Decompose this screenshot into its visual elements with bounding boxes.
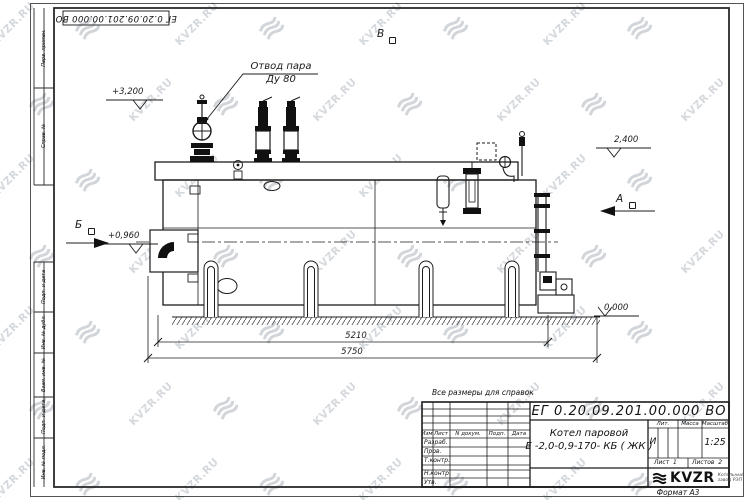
product-name-line2: Е -2,0-0,9-170- КБ ( ЖК ) — [525, 441, 652, 452]
reference-note: Все размеры для справок — [432, 388, 534, 397]
mass-header: Масса — [681, 421, 699, 427]
top-stamp-number: ЕГ 0.20.09.201.00.000 ВО — [55, 13, 176, 23]
view-v-ref-icon — [389, 37, 396, 44]
col-ndoc: N докум. — [455, 431, 481, 437]
steam-outlet-label-line1: Отвод пара — [251, 61, 312, 72]
kvzr-logo: KVZR Котельный завод РЭП — [652, 470, 744, 486]
steam-outlet-label-line2: Ду 80 — [266, 74, 296, 85]
view-a-ref-icon — [629, 202, 636, 209]
dimension-5210: 5210 — [345, 331, 367, 341]
product-name-line1: Котел паровой — [550, 428, 628, 439]
kvzr-logo-icon — [652, 472, 667, 485]
text-layer: ЕГ 0.20.09.201.00.000 ВО Перв. примен. С… — [0, 0, 750, 500]
format-note: Формат А3 — [657, 488, 700, 497]
role-tkontr: Т.контр. — [424, 457, 450, 464]
col-list: Лист — [434, 431, 448, 437]
strip-podp-data-2: Подп. и дата — [41, 400, 47, 434]
scale-value: 1:25 — [704, 437, 725, 448]
sheet-label: Лист — [654, 459, 669, 466]
sheet-value: 1 — [673, 459, 677, 466]
view-label-v: В — [377, 28, 384, 40]
strip-inv-podl: Инв. № подл. — [41, 445, 47, 480]
sheets-cell: Листов 2 — [692, 459, 722, 466]
strip-vzam-inv: Взам. инв. № — [41, 358, 47, 392]
strip-podp-data-1: Подп. и дата — [41, 270, 47, 304]
elevation-0000: 0,000 — [604, 303, 628, 313]
strip-sprav-no: Справ. № — [41, 124, 47, 148]
elevation-2400: 2,400 — [614, 135, 638, 145]
dimension-5750: 5750 — [341, 347, 363, 357]
view-label-b: Б — [75, 219, 82, 231]
col-podp: Подп. — [489, 431, 506, 437]
drawing-sheet: KVZR.RUKVZR.RUKVZR.RUKVZR.RUKVZR.RUKVZR.… — [0, 0, 750, 500]
sheets-value: 2 — [718, 459, 722, 466]
doc-number: ЕГ 0.20.09.201.00.000 ВО — [531, 404, 726, 419]
view-label-a: А — [616, 193, 623, 205]
role-utv: Утв. — [424, 479, 437, 486]
strip-inv-dubl: Инв. № дубл. — [41, 315, 47, 349]
sheets-label: Листов — [692, 459, 714, 466]
col-izm: Изм — [421, 431, 432, 437]
lit-header: Лит. — [657, 421, 670, 427]
role-prov: Пров. — [424, 448, 441, 455]
role-razrab: Разраб. — [424, 439, 448, 446]
kvzr-logo-caption: Котельный завод РЭП — [718, 473, 744, 483]
elevation-3200: +3,200 — [112, 87, 143, 97]
kvzr-logo-text: KVZR — [670, 470, 715, 486]
role-nkontr: Н.контр. — [424, 470, 451, 477]
sheet-cell: Лист 1 — [654, 459, 677, 466]
elevation-0960: +0,960 — [108, 231, 139, 241]
strip-perv-primen: Перв. примен. — [41, 29, 47, 67]
scale-header: Масштаб — [702, 421, 728, 427]
col-data: Дата — [512, 431, 526, 437]
lit-value: И — [650, 437, 657, 447]
view-b-ref-icon — [88, 228, 95, 235]
